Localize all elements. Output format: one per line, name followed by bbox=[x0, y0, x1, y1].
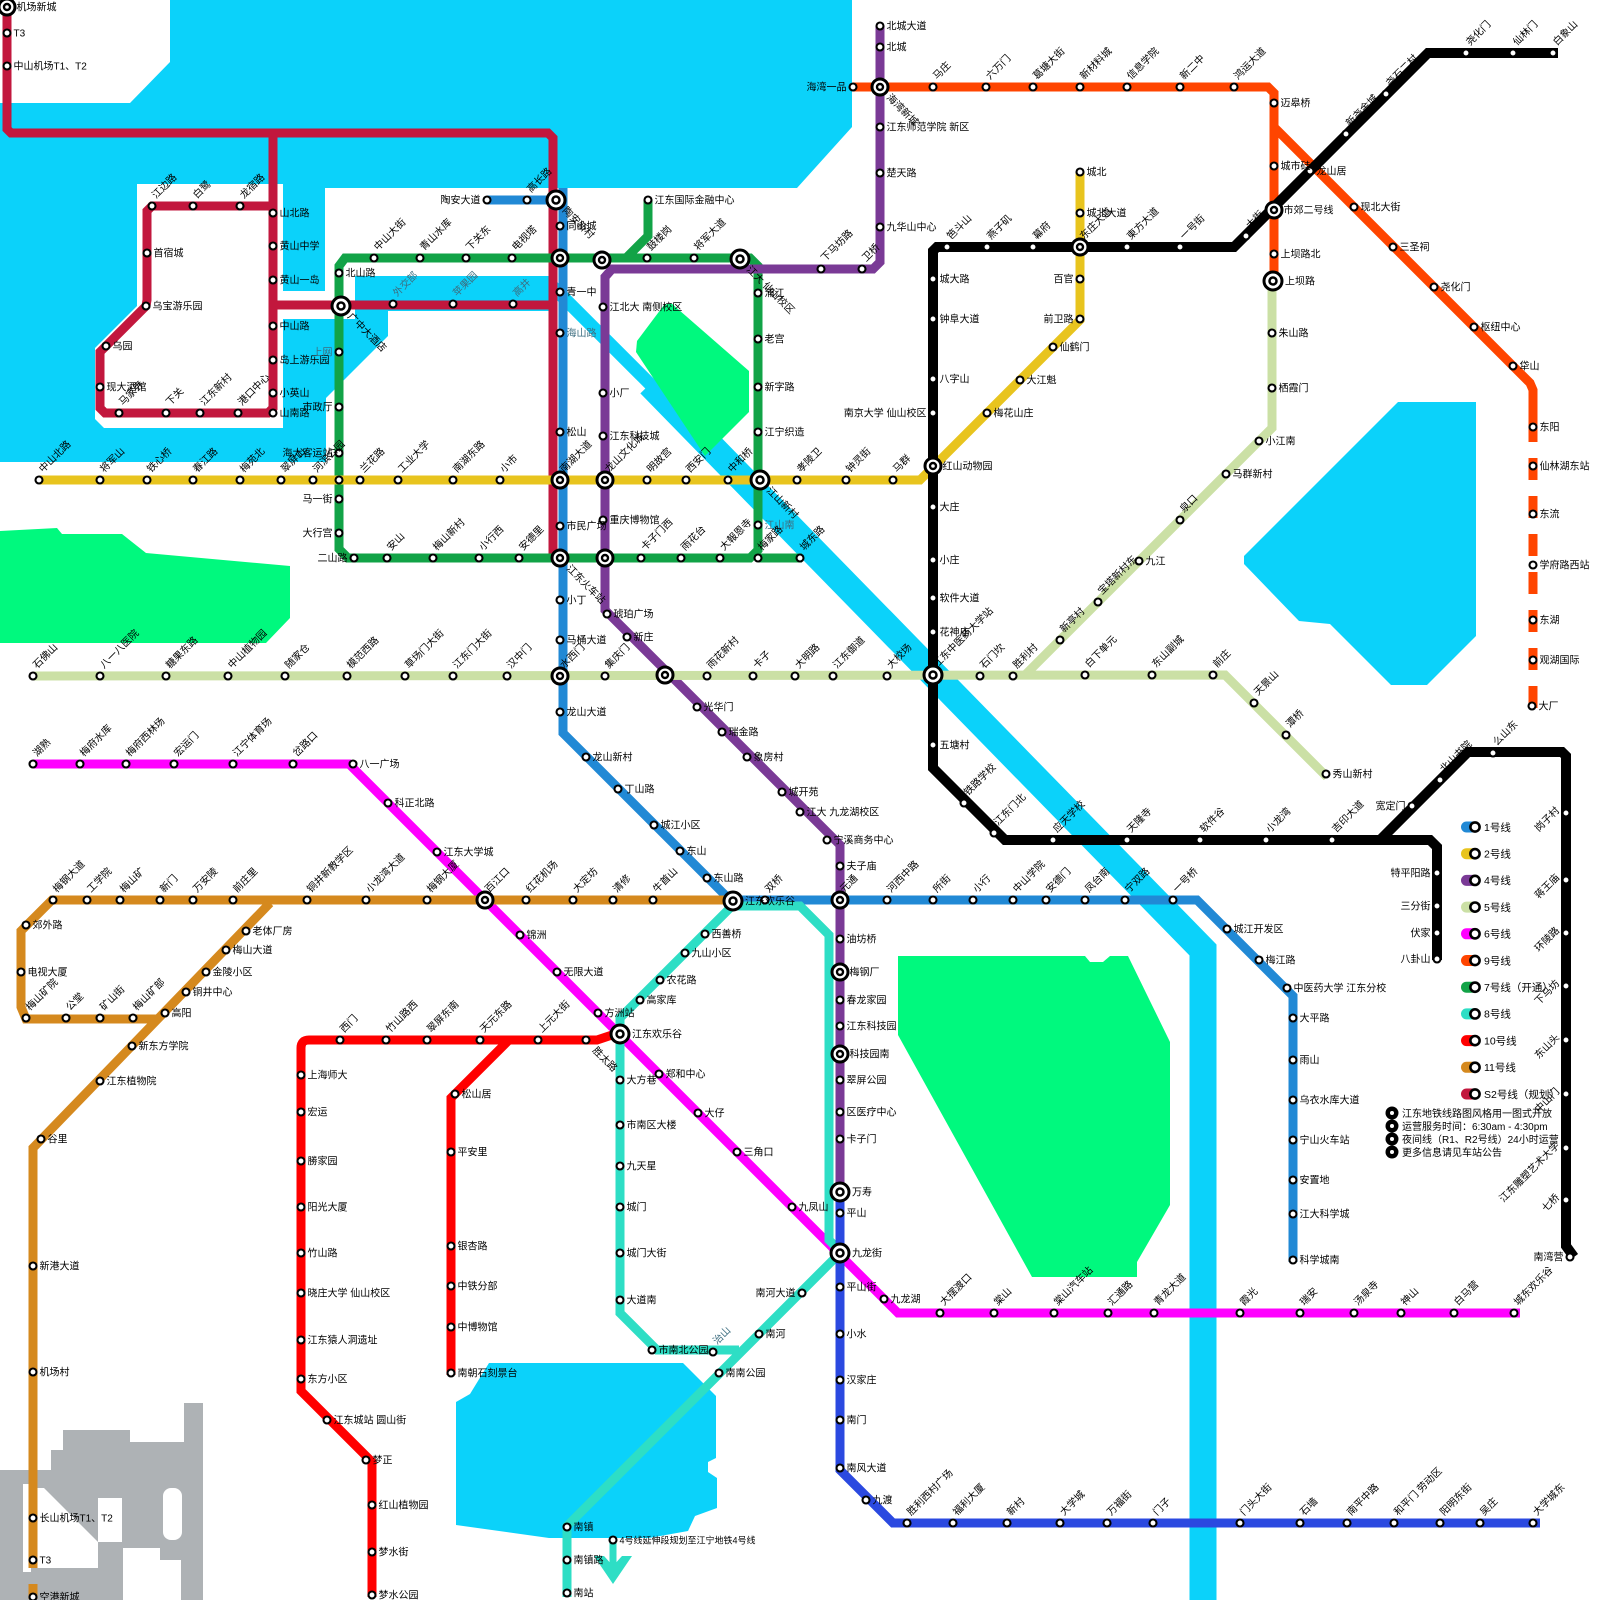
svg-text:城市硅巷: 城市硅巷 bbox=[1281, 160, 1321, 173]
svg-text:11号线: 11号线 bbox=[1484, 1061, 1516, 1074]
svg-text:马群新村: 马群新村 bbox=[1233, 468, 1273, 481]
svg-text:10号线: 10号线 bbox=[1484, 1034, 1517, 1047]
svg-text:中山路: 中山路 bbox=[280, 320, 310, 333]
svg-text:高家库: 高家库 bbox=[647, 994, 677, 1007]
svg-text:城北: 城北 bbox=[1087, 167, 1107, 179]
svg-text:小厂: 小厂 bbox=[610, 388, 630, 400]
svg-text:6号线: 6号线 bbox=[1484, 928, 1511, 941]
svg-text:栖霞门: 栖霞门 bbox=[1279, 382, 1309, 395]
svg-text:9号线: 9号线 bbox=[1484, 954, 1511, 967]
svg-text:梅江路: 梅江路 bbox=[1266, 954, 1296, 967]
svg-text:北城大道: 北城大道 bbox=[887, 20, 927, 33]
svg-text:钟阜大道: 钟阜大道 bbox=[940, 313, 980, 326]
svg-text:东流: 东流 bbox=[1540, 508, 1560, 521]
svg-text:梦水公园: 梦水公园 bbox=[379, 1590, 419, 1600]
svg-text:观湖国际: 观湖国际 bbox=[1540, 655, 1580, 667]
svg-text:江宁织造: 江宁织造 bbox=[765, 426, 805, 439]
svg-text:上网: 上网 bbox=[313, 347, 333, 359]
svg-text:黄山一岛: 黄山一岛 bbox=[280, 274, 320, 287]
svg-text:牮山: 牮山 bbox=[1520, 360, 1540, 373]
svg-text:新港大道: 新港大道 bbox=[40, 1260, 80, 1273]
svg-text:7号线（开通）: 7号线（开通） bbox=[1484, 981, 1553, 994]
svg-text:勝家园: 勝家园 bbox=[308, 1155, 338, 1168]
svg-text:大庄: 大庄 bbox=[940, 501, 960, 514]
svg-text:马桶大道: 马桶大道 bbox=[567, 634, 607, 647]
svg-text:科学城南: 科学城南 bbox=[1300, 1254, 1340, 1267]
svg-text:翠屏公园: 翠屏公园 bbox=[847, 1075, 887, 1087]
svg-text:小英山: 小英山 bbox=[280, 387, 310, 400]
svg-text:谷里: 谷里 bbox=[48, 1134, 68, 1146]
svg-text:八字山: 八字山 bbox=[940, 373, 970, 386]
svg-text:江大 九龙湖校区: 江大 九龙湖校区 bbox=[807, 806, 880, 819]
svg-text:城北大道: 城北大道 bbox=[1087, 207, 1127, 220]
svg-text:松山居: 松山居 bbox=[462, 1088, 492, 1101]
svg-text:中铁分部: 中铁分部 bbox=[458, 1280, 498, 1293]
svg-text:象房村: 象房村 bbox=[754, 751, 784, 764]
svg-text:九山小区: 九山小区 bbox=[692, 948, 732, 960]
svg-text:南门: 南门 bbox=[847, 1414, 867, 1427]
svg-text:江东国际金融中心: 江东国际金融中心 bbox=[655, 194, 735, 207]
svg-text:竹山路: 竹山路 bbox=[308, 1247, 338, 1260]
svg-text:江北大 南侧校区: 江北大 南侧校区 bbox=[610, 301, 683, 314]
svg-text:龙山新村: 龙山新村 bbox=[593, 751, 633, 764]
svg-text:江大科学城: 江大科学城 bbox=[1300, 1208, 1350, 1221]
svg-text:江东欢乐谷: 江东欢乐谷 bbox=[745, 895, 795, 908]
svg-text:安置地: 安置地 bbox=[1300, 1174, 1330, 1187]
svg-text:八卦山: 八卦山 bbox=[1401, 953, 1431, 966]
svg-text:银杏路: 银杏路 bbox=[458, 1240, 488, 1253]
svg-text:乌园: 乌园 bbox=[113, 340, 133, 353]
svg-text:九江: 九江 bbox=[1146, 556, 1166, 568]
svg-text:上海师大: 上海师大 bbox=[308, 1069, 348, 1082]
svg-text:江东大学城: 江东大学城 bbox=[444, 846, 494, 859]
svg-text:东山: 东山 bbox=[687, 845, 707, 858]
svg-text:郊外路: 郊外路 bbox=[33, 919, 63, 932]
svg-text:小庄: 小庄 bbox=[940, 554, 960, 567]
svg-text:现北大街: 现北大街 bbox=[1361, 201, 1401, 214]
svg-text:九龙街: 九龙街 bbox=[852, 1247, 882, 1260]
svg-text:梅钢厂: 梅钢厂 bbox=[850, 966, 880, 979]
svg-text:宁溪商务中心: 宁溪商务中心 bbox=[834, 834, 894, 847]
svg-text:卡子门: 卡子门 bbox=[847, 1133, 877, 1146]
svg-text:科正北路: 科正北路 bbox=[395, 797, 435, 810]
svg-text:方洲站: 方洲站 bbox=[605, 1007, 635, 1020]
svg-text:小江南: 小江南 bbox=[1266, 435, 1296, 448]
svg-text:黄山中学: 黄山中学 bbox=[280, 240, 320, 253]
svg-text:S2号线（规划）: S2号线（规划） bbox=[1484, 1088, 1560, 1101]
svg-text:江东欢乐谷: 江东欢乐谷 bbox=[632, 1028, 682, 1041]
svg-text:城江开发区: 城江开发区 bbox=[1234, 923, 1284, 936]
svg-text:平山街: 平山街 bbox=[847, 1281, 877, 1294]
svg-text:北城: 北城 bbox=[887, 42, 907, 54]
svg-text:宁山火车站: 宁山火车站 bbox=[1300, 1134, 1350, 1147]
svg-text:东方小区: 东方小区 bbox=[308, 1373, 348, 1386]
svg-text:大方巷: 大方巷 bbox=[627, 1074, 657, 1087]
svg-text:三圣祠: 三圣祠 bbox=[1400, 241, 1430, 254]
svg-text:梦水街: 梦水街 bbox=[379, 1546, 409, 1559]
svg-text:无限大道: 无限大道 bbox=[564, 966, 604, 979]
svg-text:1号线: 1号线 bbox=[1484, 821, 1511, 834]
svg-text:区医疗中心: 区医疗中心 bbox=[847, 1106, 897, 1119]
svg-text:电视大厦: 电视大厦 bbox=[28, 966, 68, 979]
svg-text:琥珀广场: 琥珀广场 bbox=[614, 608, 654, 621]
svg-text:海湾一品: 海湾一品 bbox=[807, 81, 847, 94]
svg-text:江东猿人洞遗址: 江东猿人洞遗址 bbox=[308, 1334, 378, 1347]
svg-text:夜间线（R1、R2号线）24小时运营: 夜间线（R1、R2号线）24小时运营 bbox=[1402, 1133, 1559, 1146]
svg-text:五塘村: 五塘村 bbox=[940, 739, 970, 752]
svg-text:乌衣水库大道: 乌衣水库大道 bbox=[1300, 1094, 1360, 1107]
svg-text:2号线: 2号线 bbox=[1484, 848, 1511, 861]
svg-text:汉家庄: 汉家庄 bbox=[847, 1374, 877, 1387]
svg-text:郑和中心: 郑和中心 bbox=[666, 1068, 706, 1081]
svg-text:更多信息请见车站公告: 更多信息请见车站公告 bbox=[1402, 1146, 1502, 1159]
svg-text:红山动物园: 红山动物园 bbox=[943, 460, 993, 473]
svg-text:城开苑: 城开苑 bbox=[789, 786, 819, 799]
svg-text:城江小区: 城江小区 bbox=[661, 820, 701, 832]
svg-text:乌宝游乐园: 乌宝游乐园 bbox=[153, 300, 203, 313]
svg-text:机场村: 机场村 bbox=[40, 1366, 70, 1379]
svg-text:大道南: 大道南 bbox=[627, 1294, 657, 1307]
svg-text:南镇: 南镇 bbox=[574, 1521, 594, 1534]
svg-text:尧化门: 尧化门 bbox=[1441, 281, 1471, 294]
svg-text:市民广场: 市民广场 bbox=[567, 520, 607, 533]
svg-text:大行宫: 大行宫 bbox=[303, 527, 333, 540]
svg-text:新字路: 新字路 bbox=[765, 381, 795, 394]
svg-text:机场新城: 机场新城 bbox=[17, 1, 57, 14]
svg-text:农花路: 农花路 bbox=[667, 974, 697, 987]
svg-text:秀山新村: 秀山新村 bbox=[1333, 768, 1373, 781]
svg-text:南镇路: 南镇路 bbox=[574, 1554, 604, 1567]
svg-text:朱山路: 朱山路 bbox=[1279, 327, 1309, 340]
svg-text:马一街: 马一街 bbox=[303, 493, 333, 506]
svg-text:三分街: 三分街 bbox=[1401, 900, 1431, 913]
svg-text:江东植物院: 江东植物院 bbox=[107, 1075, 157, 1088]
svg-text:新庄: 新庄 bbox=[634, 631, 654, 644]
svg-text:学府路西站: 学府路西站 bbox=[1540, 559, 1590, 572]
svg-text:宏运: 宏运 bbox=[308, 1106, 328, 1119]
svg-text:二山路: 二山路 bbox=[318, 552, 348, 565]
svg-text:长山机场T1、T2: 长山机场T1、T2 bbox=[40, 1512, 114, 1525]
svg-text:春龙家园: 春龙家园 bbox=[847, 994, 887, 1007]
svg-text:九凤山: 九凤山 bbox=[799, 1202, 829, 1214]
svg-text:南站: 南站 bbox=[574, 1587, 594, 1600]
svg-text:城门: 城门 bbox=[627, 1201, 647, 1214]
svg-text:龙山居: 龙山居 bbox=[1317, 165, 1347, 178]
svg-text:九华山中心: 九华山中心 bbox=[887, 221, 937, 234]
svg-text:大厂: 大厂 bbox=[1539, 700, 1559, 713]
svg-text:江东地铁线路图风格用一图式开放: 江东地铁线路图风格用一图式开放 bbox=[1402, 1107, 1552, 1120]
svg-text:前卫路: 前卫路 bbox=[1044, 313, 1074, 326]
svg-text:九龙湖: 九龙湖 bbox=[891, 1293, 921, 1306]
svg-text:陶安大道: 陶安大道 bbox=[441, 194, 481, 207]
svg-text:龙山大道: 龙山大道 bbox=[567, 706, 607, 719]
svg-text:东湖: 东湖 bbox=[1540, 614, 1560, 627]
svg-text:花神庙: 花神庙 bbox=[940, 626, 970, 639]
svg-text:中山机场T1、T2: 中山机场T1、T2 bbox=[14, 60, 88, 73]
svg-text:市南区大楼: 市南区大楼 bbox=[627, 1119, 677, 1132]
svg-text:江东科技城: 江东科技城 bbox=[610, 430, 660, 443]
svg-text:万寿: 万寿 bbox=[852, 1186, 872, 1199]
svg-text:雨山: 雨山 bbox=[1300, 1055, 1320, 1067]
svg-text:江东城站 圆山街: 江东城站 圆山街 bbox=[334, 1414, 407, 1427]
svg-text:同山城: 同山城 bbox=[567, 221, 597, 233]
svg-text:宽定门: 宽定门 bbox=[1376, 800, 1406, 813]
svg-text:金陵小区: 金陵小区 bbox=[213, 966, 253, 979]
svg-text:梅花山庄: 梅花山庄 bbox=[994, 407, 1034, 420]
svg-text:晓庄大学 仙山校区: 晓庄大学 仙山校区 bbox=[308, 1287, 391, 1300]
svg-text:城大路: 城大路 bbox=[940, 273, 970, 286]
svg-text:南风大道: 南风大道 bbox=[847, 1462, 887, 1475]
svg-text:松山: 松山 bbox=[567, 426, 587, 439]
svg-text:5号线: 5号线 bbox=[1484, 901, 1511, 914]
svg-text:4号线延伸段规划至江宁地铁4号线: 4号线延伸段规划至江宁地铁4号线 bbox=[620, 1535, 756, 1546]
svg-text:4号线: 4号线 bbox=[1484, 874, 1511, 887]
svg-text:南京大学 仙山校区: 南京大学 仙山校区 bbox=[844, 407, 927, 420]
svg-text:运营服务时间：6:30am - 4:30pm: 运营服务时间：6:30am - 4:30pm bbox=[1402, 1120, 1548, 1133]
svg-text:上坝路北: 上坝路北 bbox=[1281, 248, 1321, 261]
svg-text:锦洲: 锦洲 bbox=[527, 929, 547, 942]
svg-text:梦正: 梦正 bbox=[373, 1455, 393, 1467]
svg-text:瑞金路: 瑞金路 bbox=[729, 726, 759, 739]
svg-text:九天星: 九天星 bbox=[627, 1161, 657, 1173]
svg-text:南河: 南河 bbox=[766, 1328, 786, 1341]
svg-text:百官: 百官 bbox=[1054, 273, 1074, 286]
svg-text:T3: T3 bbox=[40, 1556, 52, 1567]
svg-text:市南北公园: 市南北公园 bbox=[659, 1344, 709, 1357]
svg-text:小水: 小水 bbox=[847, 1329, 867, 1341]
svg-text:大江魁: 大江魁 bbox=[1027, 374, 1057, 387]
svg-text:海山路: 海山路 bbox=[567, 327, 597, 340]
svg-text:光华门: 光华门 bbox=[704, 701, 734, 714]
svg-text:北山路: 北山路 bbox=[346, 267, 376, 280]
svg-text:仙林湖东站: 仙林湖东站 bbox=[1540, 460, 1590, 473]
svg-text:铜井中心: 铜井中心 bbox=[193, 986, 233, 999]
svg-text:老宫: 老宫 bbox=[765, 333, 785, 346]
svg-text:南朝石刻景台: 南朝石刻景台 bbox=[458, 1367, 518, 1380]
svg-text:老体厂房: 老体厂房 bbox=[253, 925, 293, 938]
svg-text:西善桥: 西善桥 bbox=[712, 928, 742, 941]
svg-text:小丁: 小丁 bbox=[567, 595, 587, 607]
svg-text:中博物馆: 中博物馆 bbox=[458, 1321, 498, 1334]
svg-text:市郊二号线: 市郊二号线 bbox=[1284, 204, 1334, 217]
svg-text:T3: T3 bbox=[14, 29, 26, 40]
svg-text:浦江: 浦江 bbox=[765, 287, 785, 300]
svg-text:梅山大道: 梅山大道 bbox=[233, 944, 273, 957]
svg-text:南湾营: 南湾营 bbox=[1534, 1251, 1564, 1264]
svg-text:山北路: 山北路 bbox=[280, 207, 310, 220]
svg-text:城门大街: 城门大街 bbox=[627, 1247, 667, 1260]
svg-text:重庆博物馆: 重庆博物馆 bbox=[610, 514, 660, 527]
svg-text:市政厅: 市政厅 bbox=[303, 401, 333, 414]
svg-text:丁山路: 丁山路 bbox=[625, 783, 655, 796]
svg-text:江东科技园: 江东科技园 bbox=[847, 1020, 897, 1033]
svg-text:平安里: 平安里 bbox=[458, 1146, 488, 1159]
svg-text:软件大道: 软件大道 bbox=[940, 592, 980, 605]
svg-text:上坝路: 上坝路 bbox=[1285, 275, 1315, 288]
svg-text:东山路: 东山路 bbox=[714, 872, 744, 885]
svg-text:新东方学院: 新东方学院 bbox=[139, 1040, 189, 1053]
svg-text:空港新城: 空港新城 bbox=[40, 1591, 80, 1600]
svg-text:海大客运站: 海大客运站 bbox=[283, 447, 333, 460]
svg-text:大仔: 大仔 bbox=[705, 1107, 725, 1120]
svg-text:大平路: 大平路 bbox=[1300, 1012, 1330, 1025]
svg-text:枢纽中心: 枢纽中心 bbox=[1481, 321, 1521, 334]
svg-text:八一广场: 八一广场 bbox=[360, 758, 400, 771]
svg-text:阳光大厦: 阳光大厦 bbox=[308, 1201, 348, 1214]
svg-text:楚天路: 楚天路 bbox=[887, 167, 917, 180]
svg-text:特平阳路: 特平阳路 bbox=[1391, 867, 1431, 880]
svg-text:高阳: 高阳 bbox=[172, 1007, 192, 1020]
svg-text:南河大道: 南河大道 bbox=[756, 1287, 796, 1300]
svg-text:江东师范学院 新区: 江东师范学院 新区 bbox=[887, 121, 970, 134]
svg-text:红山植物园: 红山植物园 bbox=[379, 1499, 429, 1512]
svg-text:夫子庙: 夫子庙 bbox=[847, 860, 877, 873]
svg-text:青一中: 青一中 bbox=[567, 286, 597, 299]
svg-text:东阳: 东阳 bbox=[1540, 421, 1560, 434]
svg-text:8号线: 8号线 bbox=[1484, 1008, 1511, 1021]
svg-text:伏家: 伏家 bbox=[1411, 927, 1431, 940]
svg-text:平山: 平山 bbox=[847, 1208, 867, 1220]
svg-text:首宿城: 首宿城 bbox=[154, 247, 184, 260]
svg-text:中医药大学 江东分校: 中医药大学 江东分校 bbox=[1294, 982, 1387, 995]
svg-text:九渡: 九渡 bbox=[873, 1494, 893, 1507]
svg-text:迈皋桥: 迈皋桥 bbox=[1281, 97, 1311, 110]
svg-text:三角口: 三角口 bbox=[744, 1147, 774, 1159]
svg-text:现大酒馆: 现大酒馆 bbox=[107, 381, 147, 394]
svg-text:南南公园: 南南公园 bbox=[726, 1367, 766, 1380]
svg-text:油坊桥: 油坊桥 bbox=[847, 933, 877, 946]
svg-text:科技园南: 科技园南 bbox=[850, 1048, 890, 1061]
svg-text:仙鹤门: 仙鹤门 bbox=[1060, 341, 1090, 354]
